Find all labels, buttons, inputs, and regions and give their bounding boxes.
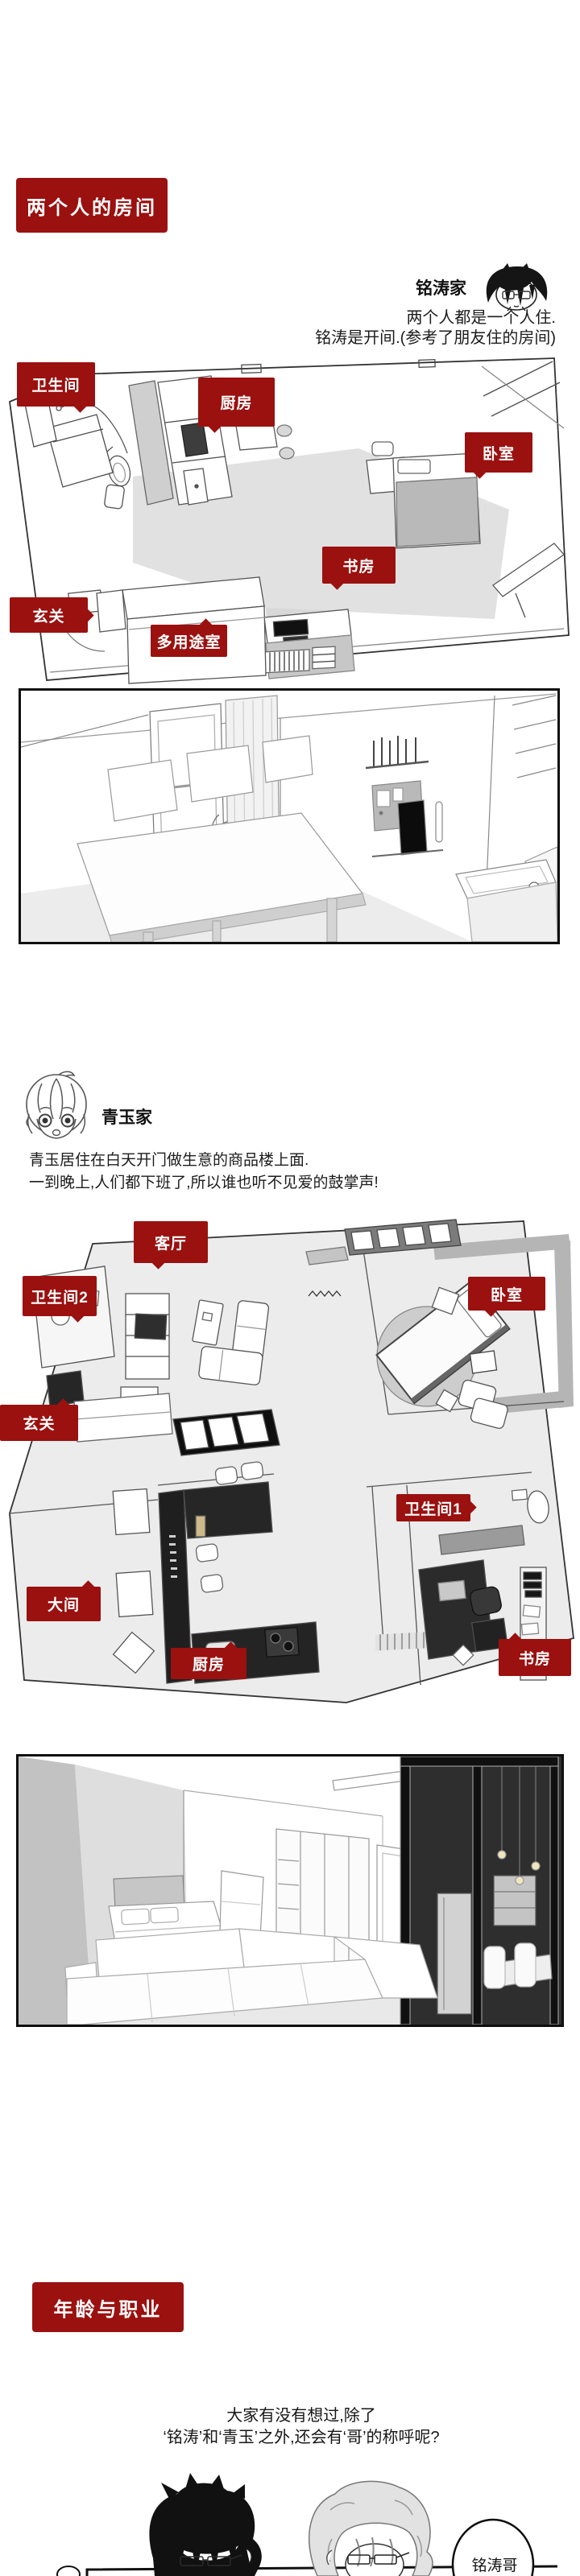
room-label-text: 卫生间1	[404, 1497, 462, 1519]
room-label-text: 书房	[342, 555, 375, 576]
qingyu-note-line1: 青玉居住在白天开门做生意的商品楼上面.	[29, 1150, 569, 1172]
room-label-text: 大间	[48, 1593, 80, 1615]
room-label-entry2: 玄关	[0, 1405, 78, 1441]
age-question-line2: ‘铭涛’和‘青玉’之外,还会有‘哥’的称呼呢?	[19, 2427, 580, 2449]
render-panel-mingtao	[19, 688, 560, 944]
render-qingyu-drawing	[19, 1757, 561, 2025]
room-label-text: 客厅	[155, 1232, 187, 1253]
room-label-study: 书房	[322, 547, 396, 584]
room-label-bedroom: 卧室	[465, 432, 532, 473]
qingyu-notes: 青玉居住在白天开门做生意的商品楼上面. 一到晚上,人们都下班了,所以谁也听不见爱…	[29, 1150, 569, 1195]
room-label-text: 厨房	[193, 1653, 225, 1674]
mingtao-note-line2: 铭涛是开间.(参考了朋友住的房间)	[226, 328, 556, 349]
age-question: 大家有没有想过,除了 ‘铭涛’和‘青玉’之外,还会有‘哥’的称呼呢?	[19, 2405, 580, 2449]
speech-bubble-text: 铭涛哥	[461, 2553, 528, 2575]
section-tag-age: 年龄与职业	[32, 2282, 184, 2332]
room-label-text: 书房	[519, 1647, 551, 1669]
room-label-entry: 玄关	[10, 597, 88, 633]
room-label-text: 玄关	[23, 1412, 55, 1434]
comic-page: 两个人的房间 铭涛家 两个人都是一个人住. 铭涛是开间.(参考了朋友住的房间)	[0, 0, 580, 2576]
room-label-text: 多用途室	[156, 630, 221, 652]
render-mingtao-drawing	[21, 691, 557, 942]
room-label-multi: 多用途室	[151, 625, 227, 657]
room-label-kitchen: 厨房	[198, 378, 275, 427]
qingyu-avatar-icon	[18, 1069, 95, 1147]
room-label-text: 卧室	[491, 1283, 523, 1305]
qingyu-note-line2: 一到晚上,人们都下班了,所以谁也听不见爱的鼓掌声!	[29, 1172, 569, 1195]
mingtao-head	[149, 2473, 261, 2576]
qingyu-head	[309, 2481, 433, 2576]
room-label-text: 厨房	[220, 391, 252, 413]
room-label-bigroom: 大间	[27, 1587, 101, 1621]
room-label-bedroom2: 卧室	[468, 1277, 545, 1311]
age-question-line1: 大家有没有想过,除了	[19, 2405, 580, 2427]
room-label-bathroom2: 卫生间2	[23, 1276, 97, 1316]
room-label-study2: 书房	[499, 1639, 571, 1676]
render-panel-qingyu	[16, 1754, 564, 2027]
room-label-text: 卫生间2	[31, 1286, 89, 1307]
room-label-living: 客厅	[134, 1221, 208, 1263]
mingtao-home-title: 铭涛家	[416, 275, 466, 299]
room-label-text: 卧室	[483, 442, 515, 464]
room-label-kitchen2: 厨房	[171, 1648, 246, 1679]
section-tag-rooms: 两个人的房间	[16, 178, 168, 233]
room-label-bathroom: 卫生间	[17, 362, 95, 407]
qingyu-home-title: 青玉家	[101, 1104, 152, 1129]
mingtao-notes: 两个人都是一个人住. 铭涛是开间.(参考了朋友住的房间)	[226, 308, 556, 349]
mingtao-avatar-icon	[478, 262, 554, 312]
mingtao-note-line1: 两个人都是一个人住.	[226, 308, 556, 328]
room-label-bathroom1: 卫生间1	[396, 1494, 470, 1521]
room-label-text: 卫生间	[31, 374, 80, 395]
room-label-text: 玄关	[32, 605, 64, 626]
